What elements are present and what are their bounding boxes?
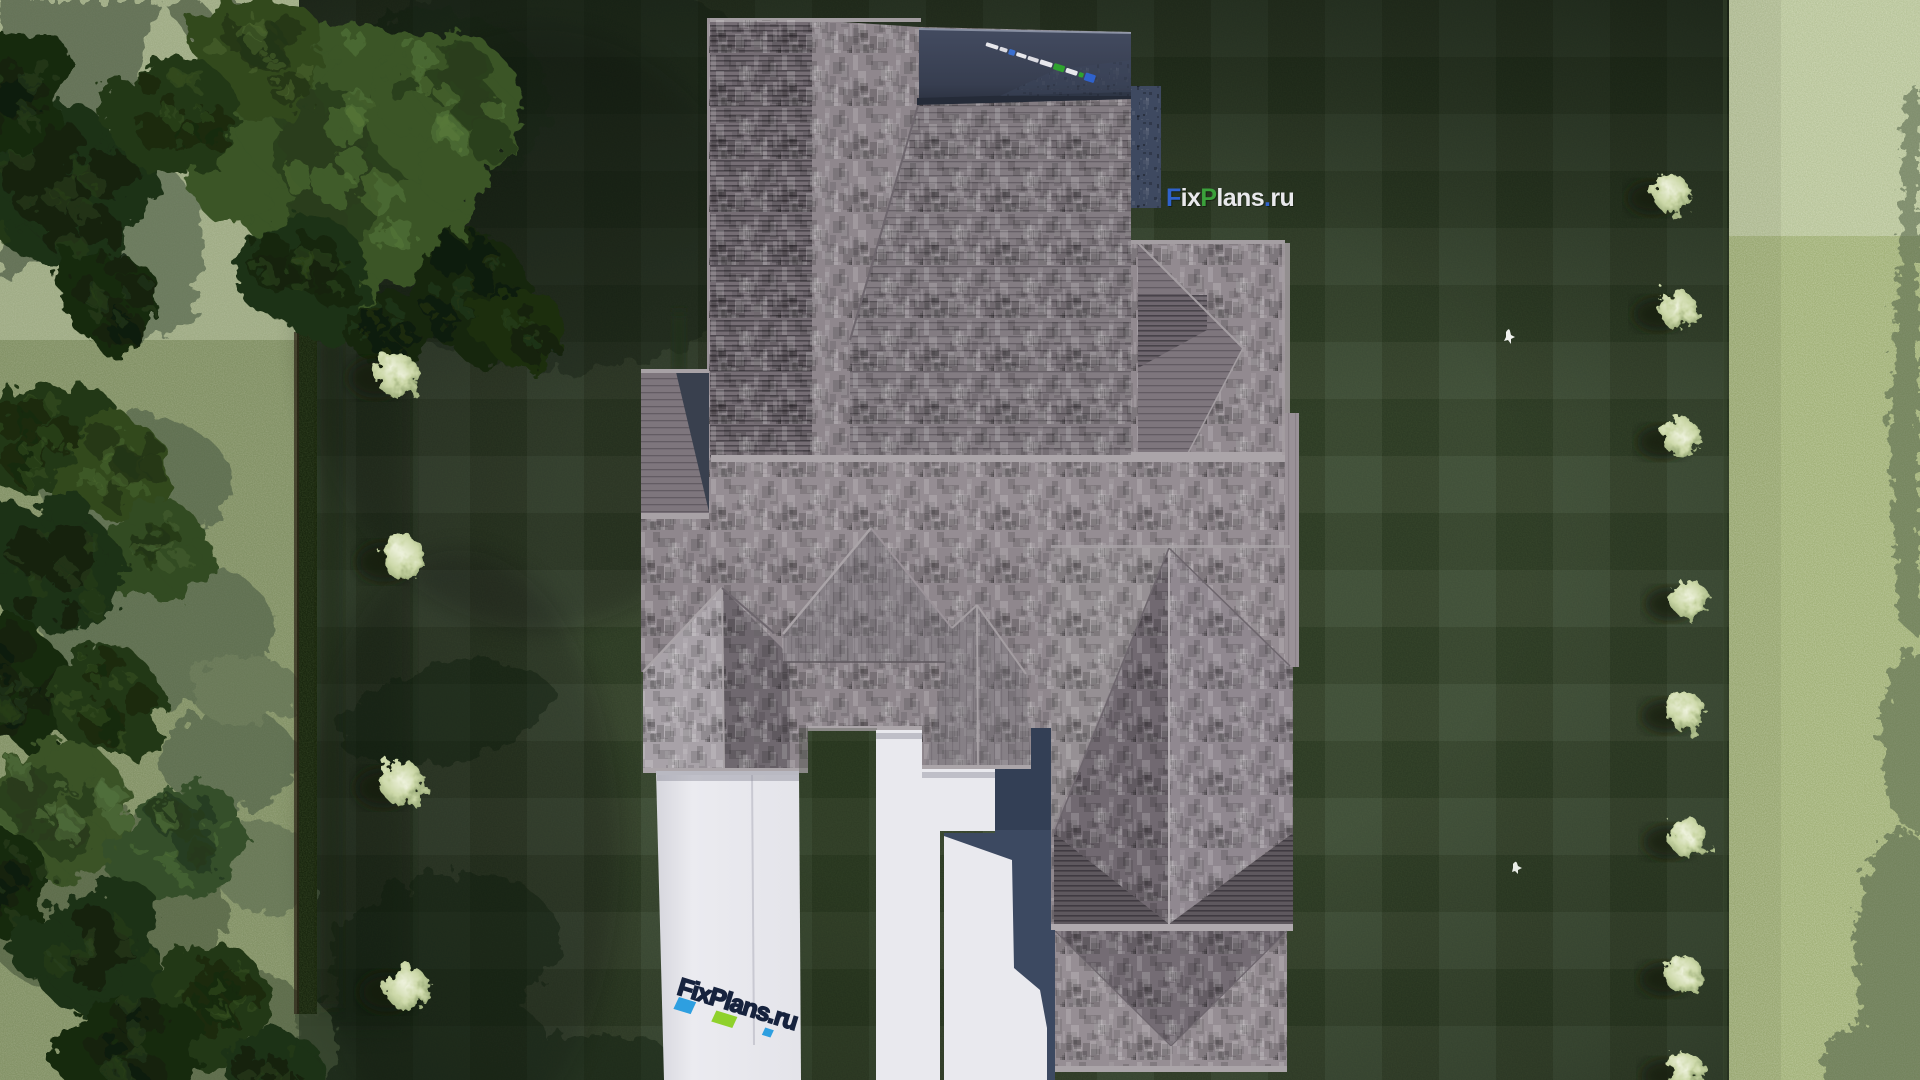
- svg-text:FixPlans.ru: FixPlans.ru: [1166, 184, 1294, 212]
